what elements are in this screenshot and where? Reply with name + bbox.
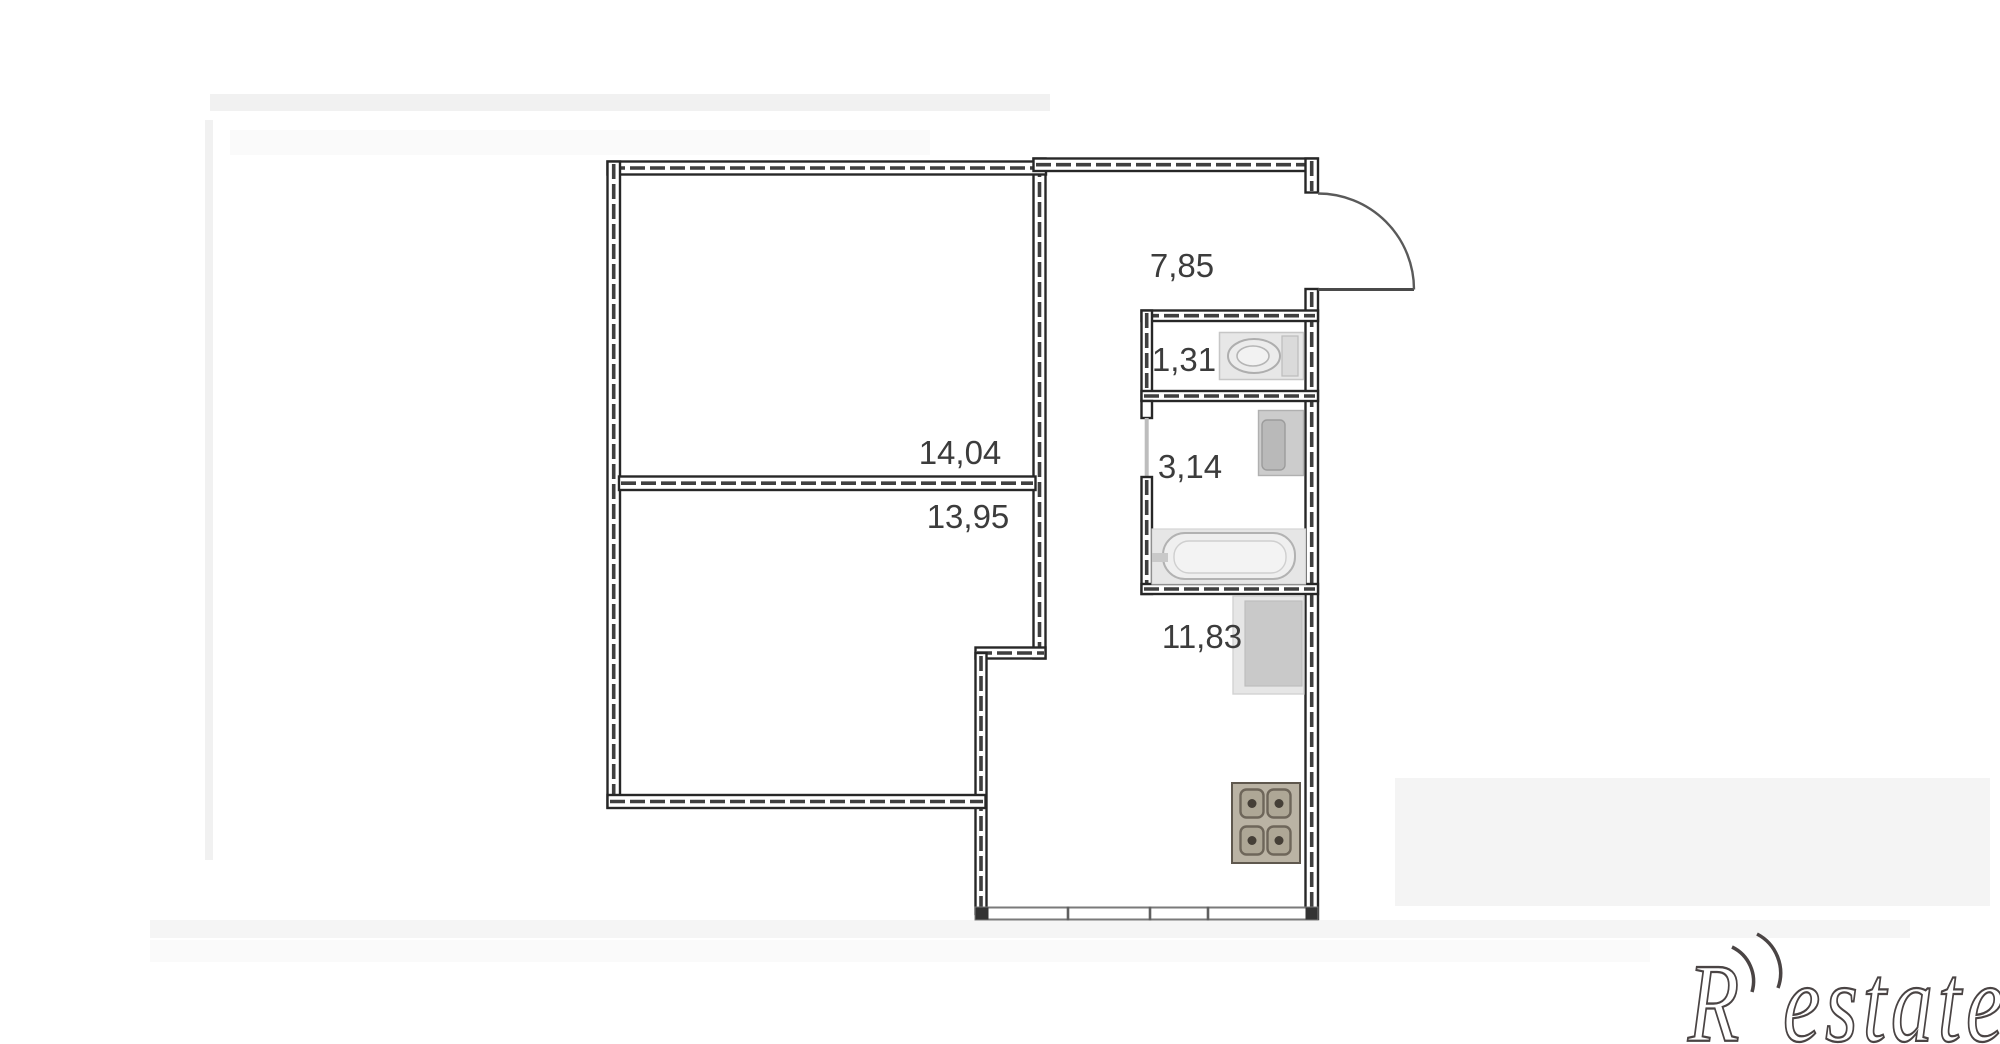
svg-text:7,85: 7,85 [1150,247,1214,284]
svg-text:1,31: 1,31 [1152,341,1216,378]
svg-text:13,95: 13,95 [927,498,1010,535]
svg-text:estate: estate [1783,943,2000,1044]
svg-text:3,14: 3,14 [1158,448,1222,485]
svg-text:14,04: 14,04 [919,434,1002,471]
svg-text:R: R [1687,943,1739,1044]
svg-text:11,83: 11,83 [1162,618,1242,655]
